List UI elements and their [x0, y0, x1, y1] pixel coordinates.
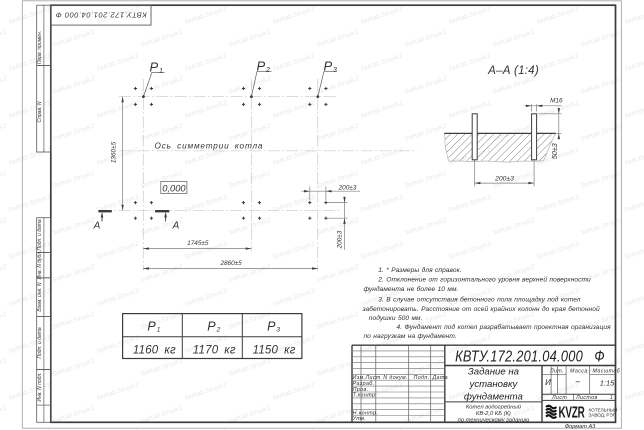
- svg-text:КВТУ.172.201.04.000 Ф: КВТУ.172.201.04.000 Ф: [55, 11, 147, 20]
- svg-text:2860±5: 2860±5: [219, 260, 242, 267]
- svg-text:3: 3: [276, 327, 280, 334]
- svg-text:установку: установку: [469, 379, 519, 390]
- svg-text:Р: Р: [267, 319, 276, 333]
- svg-text:КВТУ.172.201.04.000 Ф: КВТУ.172.201.04.000 Ф: [455, 347, 605, 364]
- svg-text:1. * Размеры для справок.: 1. * Размеры для справок.: [378, 266, 461, 274]
- svg-text:1: 1: [610, 395, 613, 401]
- svg-text:А: А: [93, 221, 101, 232]
- svg-text:Масса: Масса: [570, 368, 588, 374]
- svg-text:А: А: [172, 221, 180, 232]
- svg-text:по нагрузкам на фундамент.: по нагрузкам на фундамент.: [364, 332, 457, 340]
- svg-text:Т.контр.: Т.контр.: [353, 393, 378, 399]
- svg-text:1150 кг: 1150 кг: [253, 344, 296, 356]
- svg-text:ЗАВОД, РЭП: ЗАВОД, РЭП: [589, 413, 617, 418]
- svg-text:подушки 500 мм.: подушки 500 мм.: [369, 314, 423, 322]
- svg-text:1360±5: 1360±5: [110, 141, 117, 163]
- svg-text:Дата: Дата: [431, 375, 448, 381]
- svg-text:2. Отклонение от горизонтально: 2. Отклонение от горизонтального уровня …: [377, 276, 591, 284]
- svg-text:Р: Р: [147, 319, 156, 333]
- svg-text:Справ. N: Справ. N: [37, 101, 43, 122]
- svg-text:1: 1: [157, 327, 161, 334]
- svg-text:200±3: 200±3: [337, 230, 344, 249]
- svg-text:2: 2: [265, 67, 270, 74]
- svg-text:4. Фундамент под котел разраба: 4. Фундамент под котел разрабатывает про…: [397, 323, 612, 331]
- svg-text:забетонировать. Расстояние от: забетонировать. Расстояние от осей крайн…: [362, 305, 600, 313]
- svg-text:3: 3: [333, 67, 337, 74]
- svg-text:М16: М16: [550, 97, 563, 104]
- svg-text:фундамента: фундамента: [464, 392, 523, 403]
- svg-text:KVZR: KVZR: [559, 403, 586, 421]
- svg-text:Инв. N дубл.: Инв. N дубл.: [37, 251, 43, 280]
- svg-text:фундамента не более 10 мм.: фундамента не более 10 мм.: [364, 285, 459, 293]
- svg-text:0,000: 0,000: [162, 183, 186, 193]
- svg-text:Подп.: Подп.: [414, 375, 430, 381]
- svg-text:Формат А3: Формат А3: [565, 424, 596, 430]
- svg-text:1170 кг: 1170 кг: [193, 344, 236, 356]
- svg-text:1: 1: [159, 68, 163, 75]
- svg-text:Взам. инв. N: Взам. инв. N: [37, 282, 43, 312]
- svg-text:200±3: 200±3: [494, 175, 514, 182]
- svg-text:1:15: 1:15: [600, 379, 615, 388]
- svg-text:А–А (1:4): А–А (1:4): [487, 64, 539, 77]
- svg-text:Лист: Лист: [551, 395, 567, 401]
- svg-text:Лит.: Лит.: [549, 368, 564, 374]
- svg-text:Ось симметрии котла: Ось симметрии котла: [155, 141, 264, 150]
- svg-text:И: И: [545, 378, 551, 387]
- svg-text:N докум.: N докум.: [383, 375, 408, 381]
- svg-text:КВ-2,0 КБ (К): КВ-2,0 КБ (К): [476, 411, 511, 417]
- svg-text:Котел водогрейный: Котел водогрейный: [466, 404, 522, 411]
- svg-text:Подп. и дата: Подп. и дата: [37, 327, 43, 359]
- svg-text:Инв. N подл.: Инв. N подл.: [37, 372, 43, 401]
- svg-text:Р: Р: [207, 319, 216, 333]
- svg-text:1160 кг: 1160 кг: [133, 344, 176, 356]
- svg-text:50±3: 50±3: [550, 143, 559, 159]
- svg-text:3. В случае отсутствия бетонно: 3. В случае отсутствия бетонного пола пл…: [378, 295, 581, 303]
- svg-text:Подп. и дата: Подп. и дата: [37, 219, 43, 251]
- svg-text:КОТЕЛЬНЫЙ: КОТЕЛЬНЫЙ: [589, 405, 618, 412]
- svg-text:Утв.: Утв.: [353, 416, 367, 422]
- svg-text:–: –: [575, 377, 581, 386]
- svg-text:2: 2: [216, 327, 221, 334]
- svg-text:Задание на: Задание на: [468, 367, 519, 378]
- svg-text:по техническому заданию: по техническому заданию: [458, 417, 530, 423]
- svg-text:200±3: 200±3: [338, 184, 357, 191]
- svg-text:Масштаб: Масштаб: [593, 368, 621, 374]
- svg-text:1745±5: 1745±5: [187, 240, 209, 247]
- svg-text:Листов: Листов: [575, 395, 598, 401]
- svg-text:Перв. примен.: Перв. примен.: [37, 31, 43, 64]
